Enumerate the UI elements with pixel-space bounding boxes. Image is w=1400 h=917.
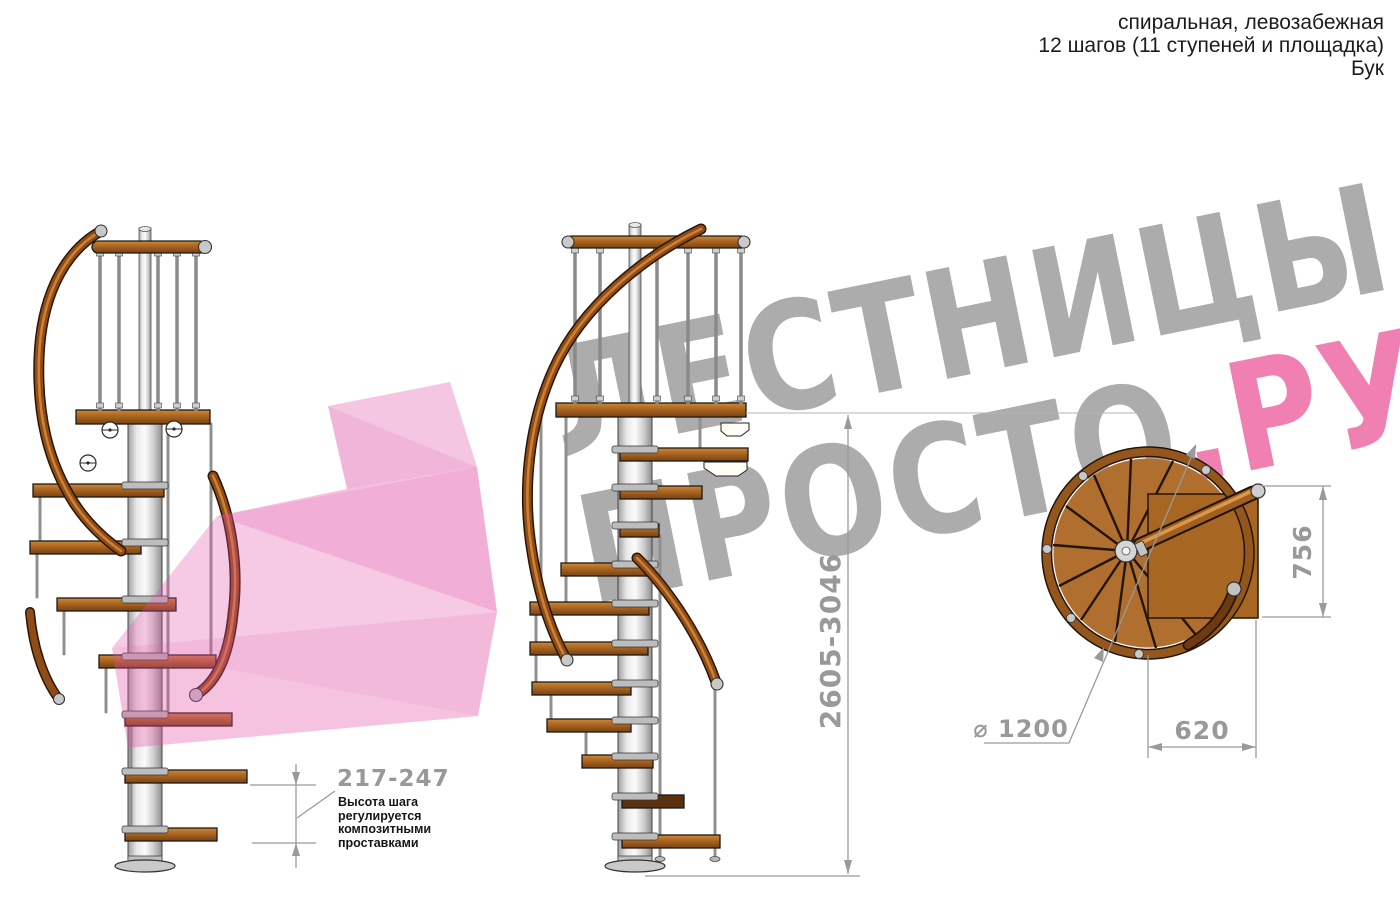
landing-depth-label: 756 bbox=[1288, 524, 1317, 579]
landing-board bbox=[556, 403, 746, 417]
base-flange bbox=[115, 860, 175, 872]
pink-arrow-watermark bbox=[112, 382, 497, 748]
diameter-label: ⌀ 1200 bbox=[973, 715, 1069, 743]
step-height-label: 217-247 bbox=[337, 766, 450, 792]
note-line: Высота шага bbox=[338, 796, 431, 810]
note-line: проставками bbox=[338, 837, 431, 851]
note-line: композитными bbox=[338, 823, 431, 837]
dimension-total-height bbox=[645, 413, 1140, 876]
landing-board bbox=[76, 410, 210, 424]
landing-railing bbox=[92, 241, 212, 411]
center-pole-top bbox=[629, 224, 641, 414]
step-height-note: Высота шага регулируется композитными пр… bbox=[338, 796, 431, 850]
landing-bracket bbox=[704, 462, 747, 476]
center-pole-top bbox=[139, 228, 151, 420]
dimension-step-height bbox=[250, 764, 335, 868]
plan-view bbox=[1042, 447, 1265, 659]
stair-drawing: 2605-3046 756 620 ⌀ 1200 217-247 bbox=[0, 0, 1400, 917]
railing-bar bbox=[92, 241, 206, 253]
base-flange bbox=[605, 860, 665, 872]
railing-bar bbox=[566, 236, 746, 248]
total-height-label: 2605-3046 bbox=[814, 553, 847, 729]
note-line: регулируется bbox=[338, 810, 431, 824]
front-side-view bbox=[527, 223, 750, 873]
landing-width-label: 620 bbox=[1174, 716, 1229, 745]
landing-bracket bbox=[721, 423, 749, 436]
